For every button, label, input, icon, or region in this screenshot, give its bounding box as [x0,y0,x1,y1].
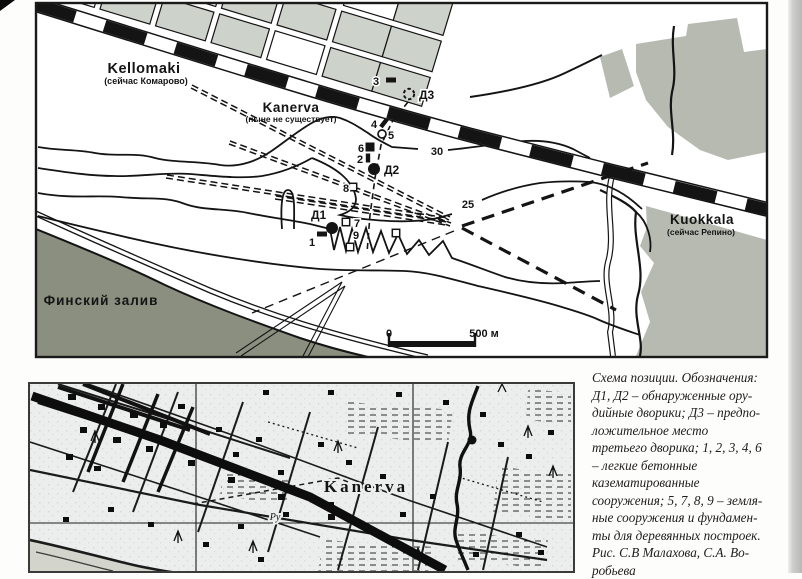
marker-label-2: 2 [357,154,363,166]
label-scale-500: 500 м [469,328,499,340]
marker-label-8: 8 [343,183,349,195]
marker-2 [366,154,370,163]
caption-line: Рис. С.В Малахова, С.А. Во- [592,544,802,562]
label-contour-30: 30 [431,146,443,158]
caption-line: третьего дворика; 1, 2, 3, 4, 6 [592,439,802,457]
marker-D2 [368,163,380,175]
marker-label-5: 5 [388,130,394,142]
label-kanerva-old-map: Kanerva [324,477,408,496]
old-topographic-map: KanervaРу [28,382,575,573]
caption-line: сооружения; 5, 7, 8, 9 – земля- [592,492,802,510]
caption-line: казематированные [592,474,802,492]
marker-9 [346,243,353,250]
figure-caption: Схема позиции. Обозначения: Д1, Д2 – обн… [592,369,802,579]
marker-label-D2: Д2 [384,163,400,177]
marker-label-3: 3 [373,76,379,88]
marker-7 [342,218,349,225]
label-contour-25: 25 [462,199,474,211]
marker-label-D1: Д1 [311,208,327,222]
caption-line: ты для деревянных построек. [592,527,802,545]
caption-line: – легкие бетонные [592,457,802,475]
caption-line: Схема позиции. Обозначения: [592,369,802,387]
caption-line: ные сооружения и фундамен- [592,509,802,527]
river-pond [468,436,477,445]
caption-line: робьева [592,562,802,579]
marker-5 [378,130,386,138]
marker-label-7: 7 [354,218,360,230]
label-kellomaki: Kellomaki [108,61,181,77]
label-kanerva: Kanerva [263,100,320,115]
marker-1 [317,232,327,237]
marker-sq-extra [392,229,399,236]
marker-label-1: 1 [309,237,315,249]
marker-6 [366,143,375,152]
caption-line: Д1, Д2 – обнаруженные ору- [592,387,802,405]
marker-label-9: 9 [353,230,359,242]
label-scale-zero: 0 [386,328,392,340]
marker-8 [349,183,356,190]
caption-line: дийные дворики; Д3 – предпо- [592,404,802,422]
label-kuokkala: Kuokkala [670,212,734,227]
marker-D1 [326,222,338,234]
label-kellomaki-sub: (сейчас Комарово) [104,76,188,86]
label-kuokkala-sub: (сейчас Репино) [667,227,735,237]
position-scheme-map: 3Д34562Д28Д1719 Kellomaki(сейчас Комаров… [0,0,802,380]
label-kanerva-sub: (ныне не существует) [245,114,336,124]
marker-3 [386,78,396,83]
marker-label-D3: Д3 [419,88,435,102]
label-stream-label: Ру [269,512,281,523]
caption-line: ложительное место [592,422,802,440]
label-gulf-of-finland: Финский залив [44,293,159,308]
marker-label-4: 4 [371,119,378,131]
